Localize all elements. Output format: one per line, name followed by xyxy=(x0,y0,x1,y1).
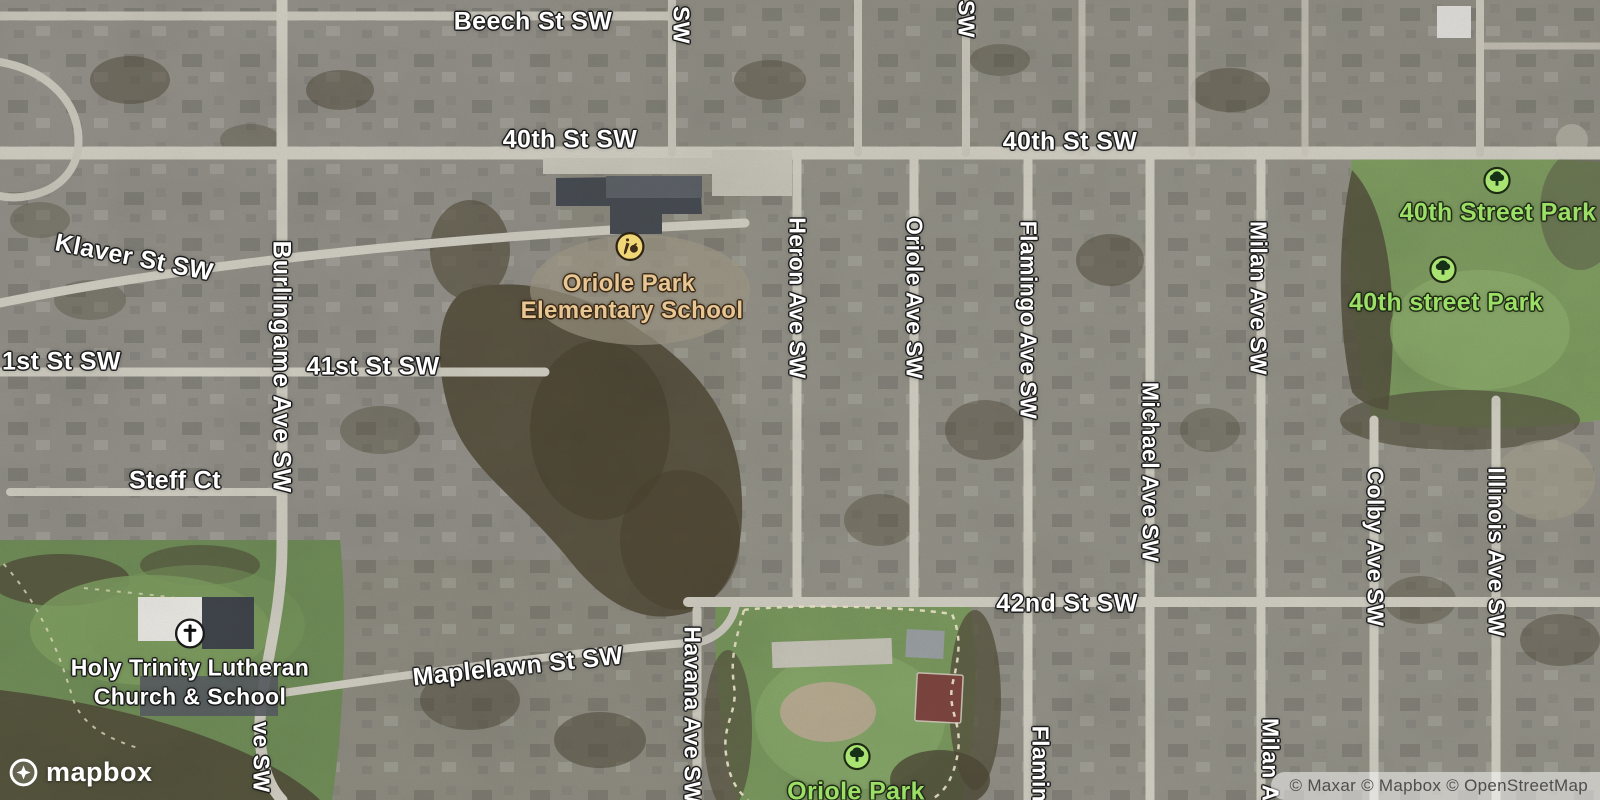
street-label-michael: Michael Ave SW xyxy=(1139,382,1162,562)
park-marker-40th-1[interactable] xyxy=(1483,166,1512,200)
school-label-line1: Oriole Park xyxy=(563,272,695,296)
street-label-illinois: Illinois Ave SW xyxy=(1485,467,1508,636)
street-label-colby: Colby Ave SW xyxy=(1364,467,1387,626)
park-tree-icon xyxy=(1483,166,1512,195)
school-marker[interactable] xyxy=(615,231,646,267)
park-marker-oriole[interactable] xyxy=(843,742,872,776)
street-label-40th-east: 40th St SW xyxy=(1003,130,1138,155)
playground-sand xyxy=(780,682,876,742)
church-icon xyxy=(174,618,206,650)
church-label-line1: Holy Trinity Lutheran xyxy=(71,657,309,680)
map-attribution[interactable]: © Maxar © Mapbox © OpenStreetMap xyxy=(1271,772,1600,800)
street-label-steff: Steff Ct xyxy=(129,469,221,494)
street-label-41st-partial: 1st St SW xyxy=(2,350,121,375)
street-label-sw-partial-1: SW xyxy=(670,6,693,44)
street-label-41st: 41st St SW xyxy=(306,355,439,380)
park-tree-icon xyxy=(1429,255,1458,284)
mapbox-logo-text: mapbox xyxy=(46,757,153,788)
church-building-dark xyxy=(202,597,254,649)
park-label-40th-1: 40th Street Park xyxy=(1400,201,1597,226)
street-label-heron: Heron Ave SW xyxy=(786,217,809,379)
street-label-sw-partial-2: SW xyxy=(955,0,978,38)
school-icon xyxy=(615,231,646,262)
map-canvas[interactable]: Beech St SW SW 40th St SW SW 40th St SW … xyxy=(0,0,1600,800)
church-marker[interactable] xyxy=(174,618,206,655)
attribution-text: © Maxar © Mapbox © OpenStreetMap xyxy=(1289,776,1588,795)
park-tree-icon xyxy=(843,742,872,771)
mapbox-logo-icon xyxy=(8,757,39,788)
church-label-line2: Church & School xyxy=(94,686,287,709)
mapbox-logo[interactable]: mapbox xyxy=(8,757,153,788)
street-label-burlingame-partial: ve SW xyxy=(250,721,273,792)
street-label-milan: Milan Ave SW xyxy=(1247,221,1270,375)
street-label-burlingame: Burlingame Ave SW xyxy=(269,241,294,494)
street-label-42nd: 42nd St SW xyxy=(996,592,1138,617)
tennis-courts xyxy=(915,673,963,723)
park-label-oriole: Oriole Park xyxy=(787,780,925,800)
street-label-oriole-ave: Oriole Ave SW xyxy=(903,217,926,379)
street-label-beech: Beech St SW xyxy=(454,10,613,35)
park-marker-40th-2[interactable] xyxy=(1429,255,1458,289)
park-label-40th-2: 40th street Park xyxy=(1349,291,1543,316)
street-label-havana: Havana Ave SW xyxy=(681,626,704,800)
street-label-40th-west: 40th St SW xyxy=(503,128,638,153)
street-label-flamingo: Flamingo Ave SW xyxy=(1017,221,1040,420)
street-label-flamingo-partial: Flamin xyxy=(1029,726,1052,800)
school-label-line2: Elementary School xyxy=(521,299,744,323)
basketball-court xyxy=(905,629,944,659)
